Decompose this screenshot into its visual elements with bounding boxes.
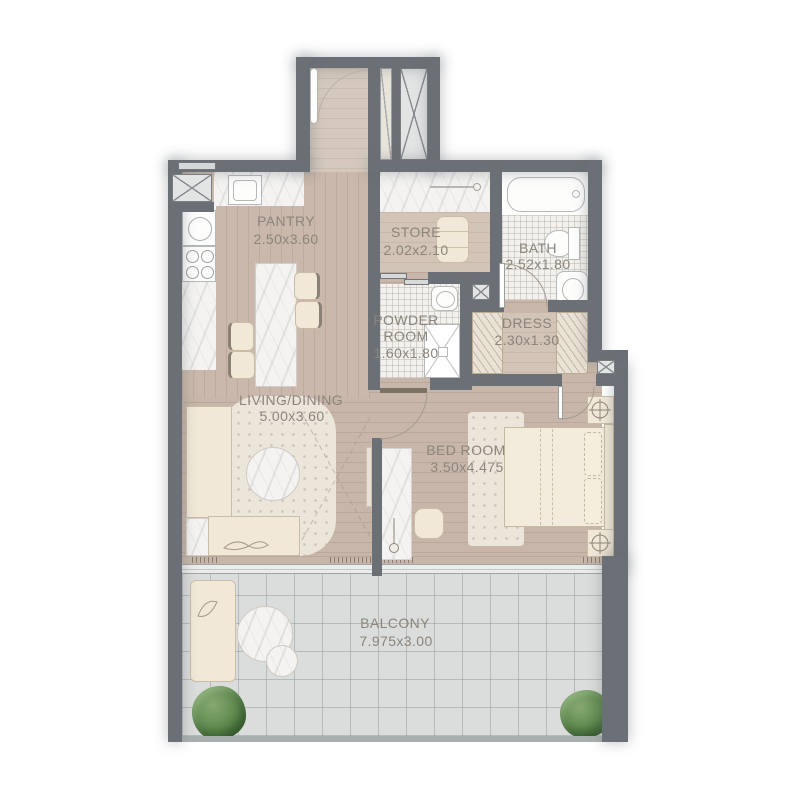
store-sliding-door xyxy=(380,273,407,279)
bed-fold xyxy=(540,429,541,525)
wall xyxy=(614,362,628,572)
wall xyxy=(602,556,628,742)
wall xyxy=(368,57,380,390)
floor-plan: PANTRY 2.50x3.60 STORE 2.02x2.10 BATH 2.… xyxy=(0,0,800,800)
lounge-sofa xyxy=(190,580,236,682)
room-dims-bedroom: 3.50x4.475 xyxy=(430,460,503,474)
powder-door xyxy=(380,388,427,393)
wall xyxy=(168,160,182,742)
burner xyxy=(201,250,214,263)
bath-door xyxy=(499,263,505,308)
bath-sink-basin xyxy=(562,278,584,302)
bench-seat xyxy=(208,516,300,556)
room-dims-pantry: 2.50x3.60 xyxy=(253,232,318,246)
entry-corridor-floor xyxy=(310,68,368,172)
sliding-glass-door xyxy=(182,564,602,574)
pillow xyxy=(584,432,602,476)
entry-door xyxy=(310,68,318,124)
room-label-living: LIVING/DINING xyxy=(239,393,343,407)
wall xyxy=(372,438,382,576)
bathtub-drain xyxy=(572,190,580,198)
burner xyxy=(186,250,199,263)
wall xyxy=(588,160,602,362)
dining-table xyxy=(255,263,297,387)
tree-icon xyxy=(192,686,246,740)
entry-closet xyxy=(380,68,392,160)
nightstand xyxy=(587,396,614,424)
room-dims-dress: 2.30x1.30 xyxy=(494,333,559,347)
service-shaft xyxy=(472,284,490,300)
wall xyxy=(430,378,460,390)
burner xyxy=(186,266,199,279)
window xyxy=(178,162,216,170)
room-dims-powder: 1.60x1.80 xyxy=(373,346,438,360)
shower-drain xyxy=(438,347,448,357)
frame-hatch xyxy=(192,557,218,563)
room-dims-store: 2.02x2.10 xyxy=(383,243,448,257)
wall xyxy=(548,300,602,312)
room-dims-bath: 2.52x1.80 xyxy=(505,257,570,271)
room-label-dress: DRESS xyxy=(502,316,552,330)
dining-chair xyxy=(295,301,322,329)
powder-sink-basin xyxy=(436,291,455,308)
room-dims-balcony: 7.975x3.00 xyxy=(359,634,432,648)
wall xyxy=(168,202,214,212)
wall xyxy=(392,68,400,160)
room-label-store: STORE xyxy=(391,225,441,239)
kitchen-shaft xyxy=(172,174,212,202)
kitchen-sink-basin xyxy=(233,180,257,201)
room-label-bedroom: BED ROOM xyxy=(426,443,505,457)
dining-chair xyxy=(228,322,254,351)
bed-fold xyxy=(552,429,553,525)
wall xyxy=(368,160,602,172)
room-label-powder-1: POWDER xyxy=(373,313,438,327)
wall xyxy=(296,57,310,172)
store-sliding-door xyxy=(404,279,429,285)
balcony-railing xyxy=(182,736,602,742)
store-counter xyxy=(380,172,490,212)
wall xyxy=(460,272,472,390)
wall xyxy=(428,57,440,172)
frame-hatch xyxy=(583,557,603,563)
burner xyxy=(201,266,214,279)
tv-console xyxy=(380,448,412,560)
room-label-pantry: PANTRY xyxy=(257,214,315,228)
dining-chair xyxy=(228,351,255,379)
room-label-powder-2: ROOM xyxy=(383,329,428,343)
shaft-closet xyxy=(400,68,428,160)
sofa xyxy=(186,406,232,518)
ac-shaft xyxy=(597,360,615,374)
nightstand xyxy=(587,529,614,557)
pillow xyxy=(584,478,602,524)
wall xyxy=(596,374,628,386)
balcony-stool xyxy=(266,645,298,677)
frame-hatch xyxy=(330,557,372,563)
wardrobe-right xyxy=(556,312,588,374)
coffee-table xyxy=(246,447,300,501)
prep-sink-basin xyxy=(188,217,212,241)
wall xyxy=(460,374,562,386)
ottoman xyxy=(414,508,444,539)
dining-chair xyxy=(294,272,320,300)
room-dims-living: 5.00x3.60 xyxy=(259,409,324,423)
room-label-balcony: BALCONY xyxy=(360,616,430,630)
headboard xyxy=(604,424,614,530)
bedroom-door xyxy=(558,386,563,419)
side-table xyxy=(186,518,210,556)
room-label-bath: BATH xyxy=(519,241,557,255)
